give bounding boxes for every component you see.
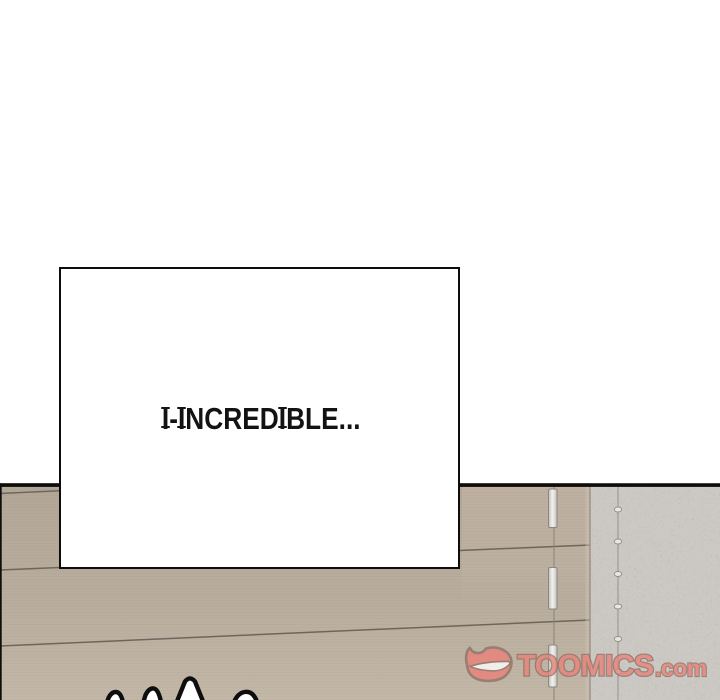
svg-text:.com: .com xyxy=(655,655,707,681)
svg-text:TOOMICS: TOOMICS xyxy=(518,650,654,683)
